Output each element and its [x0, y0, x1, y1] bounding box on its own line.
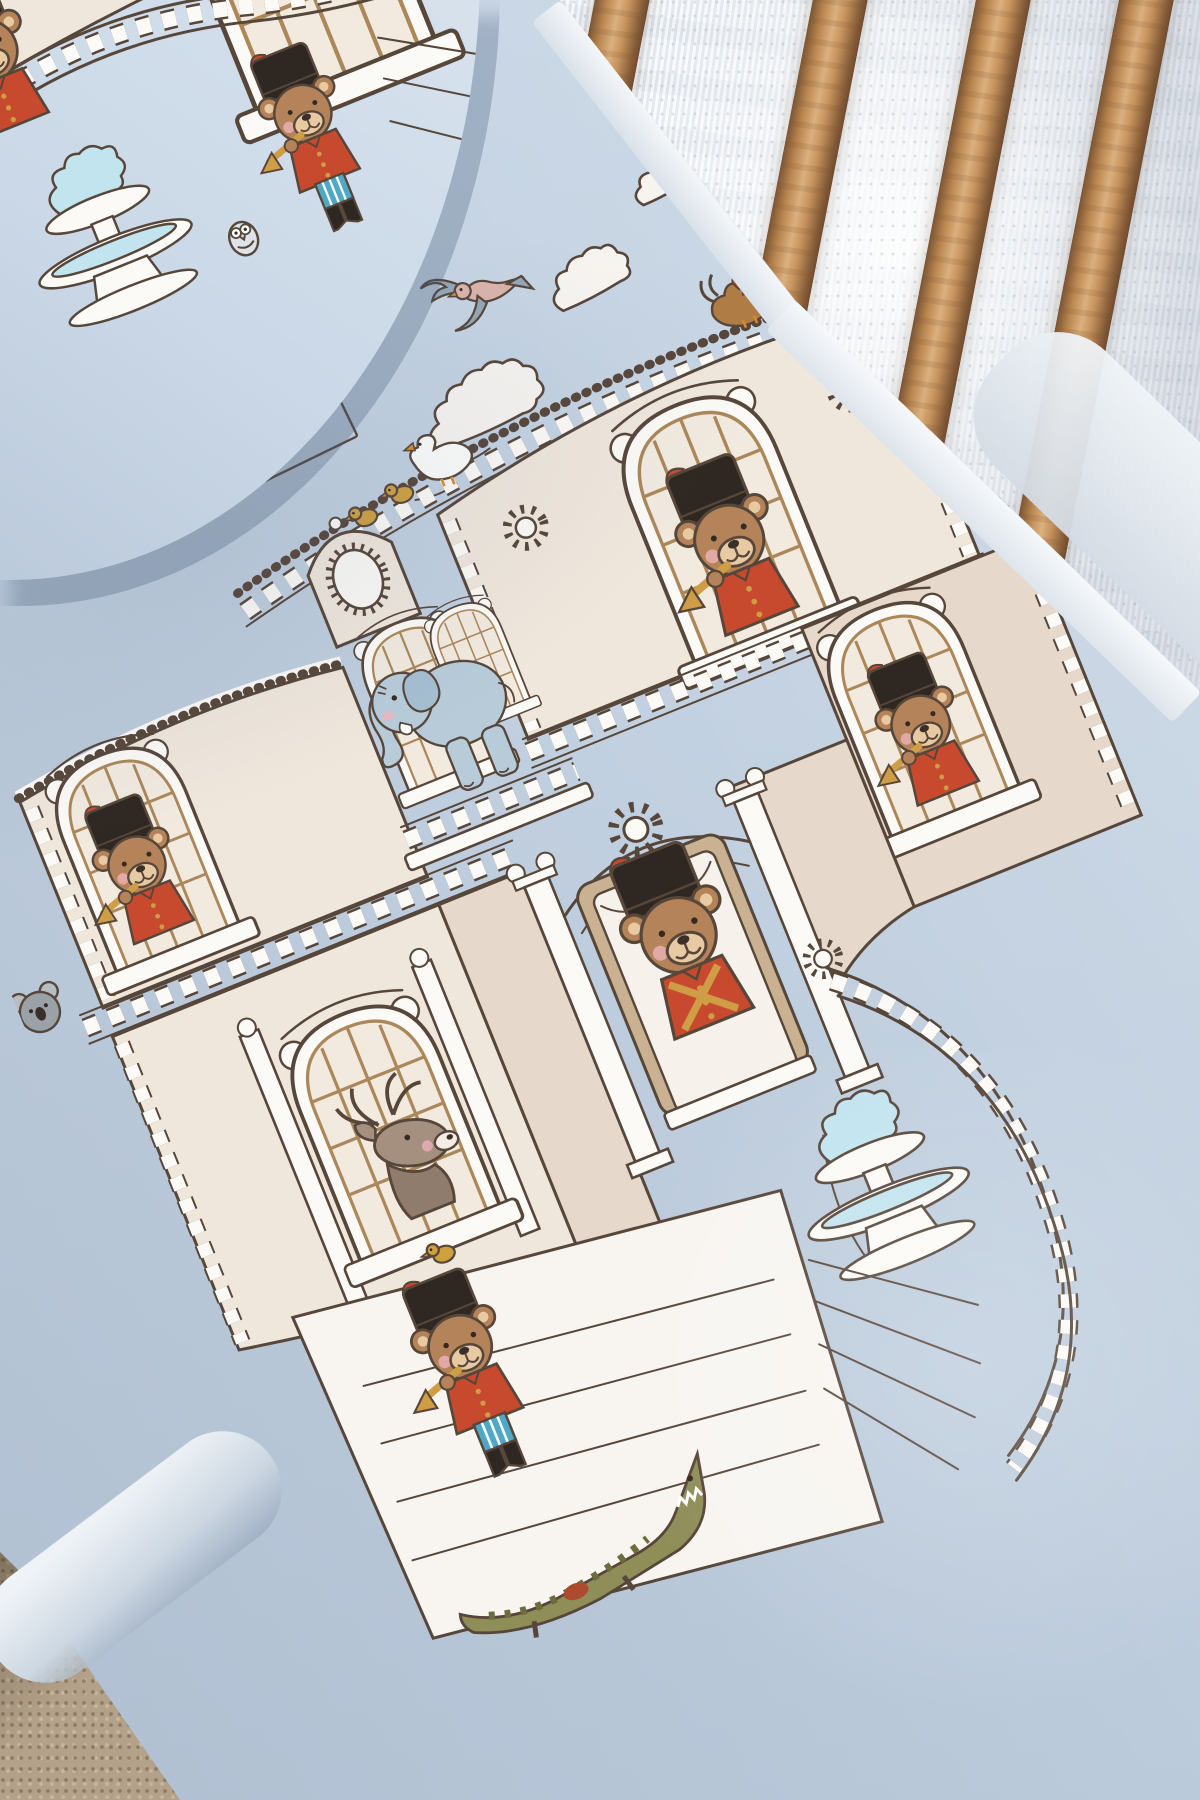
brand-title: ATELIER BABBI	[112, 389, 334, 512]
carpet-floor	[0, 1490, 250, 1800]
flying-pigeon-2	[2, 486, 108, 569]
crib-photo: ATELIER BABBI SWEET DREAMS	[0, 0, 1200, 1800]
palace-illustration: ATELIER BABBI SWEET DREAMS	[0, 86, 1200, 1763]
rooster	[698, 256, 782, 338]
brand-stamp: ATELIER BABBI SWEET DREAMS	[96, 371, 358, 548]
koala	[7, 979, 70, 1039]
bluebird	[973, 491, 1011, 522]
sheet-print-palace: ATELIER BABBI SWEET DREAMS	[0, 0, 1200, 1787]
flying-pigeon	[419, 246, 537, 338]
